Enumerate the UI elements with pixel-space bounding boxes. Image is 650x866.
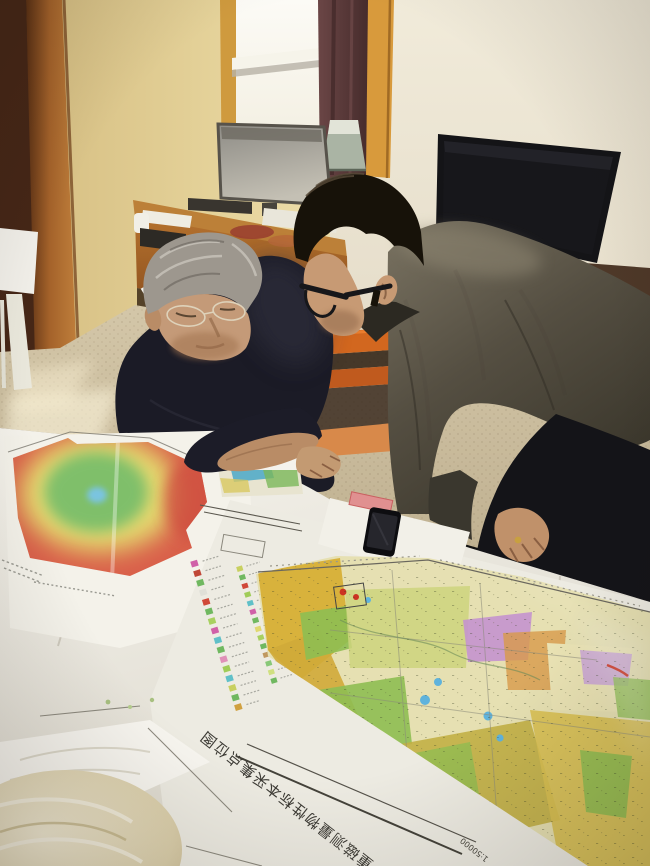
vignette bbox=[0, 0, 650, 866]
photo-hotel-room-map-review: 重磁测量物性标本采集点位图 1:50000 bbox=[0, 0, 650, 866]
photo-canvas: 重磁测量物性标本采集点位图 1:50000 bbox=[0, 0, 650, 866]
